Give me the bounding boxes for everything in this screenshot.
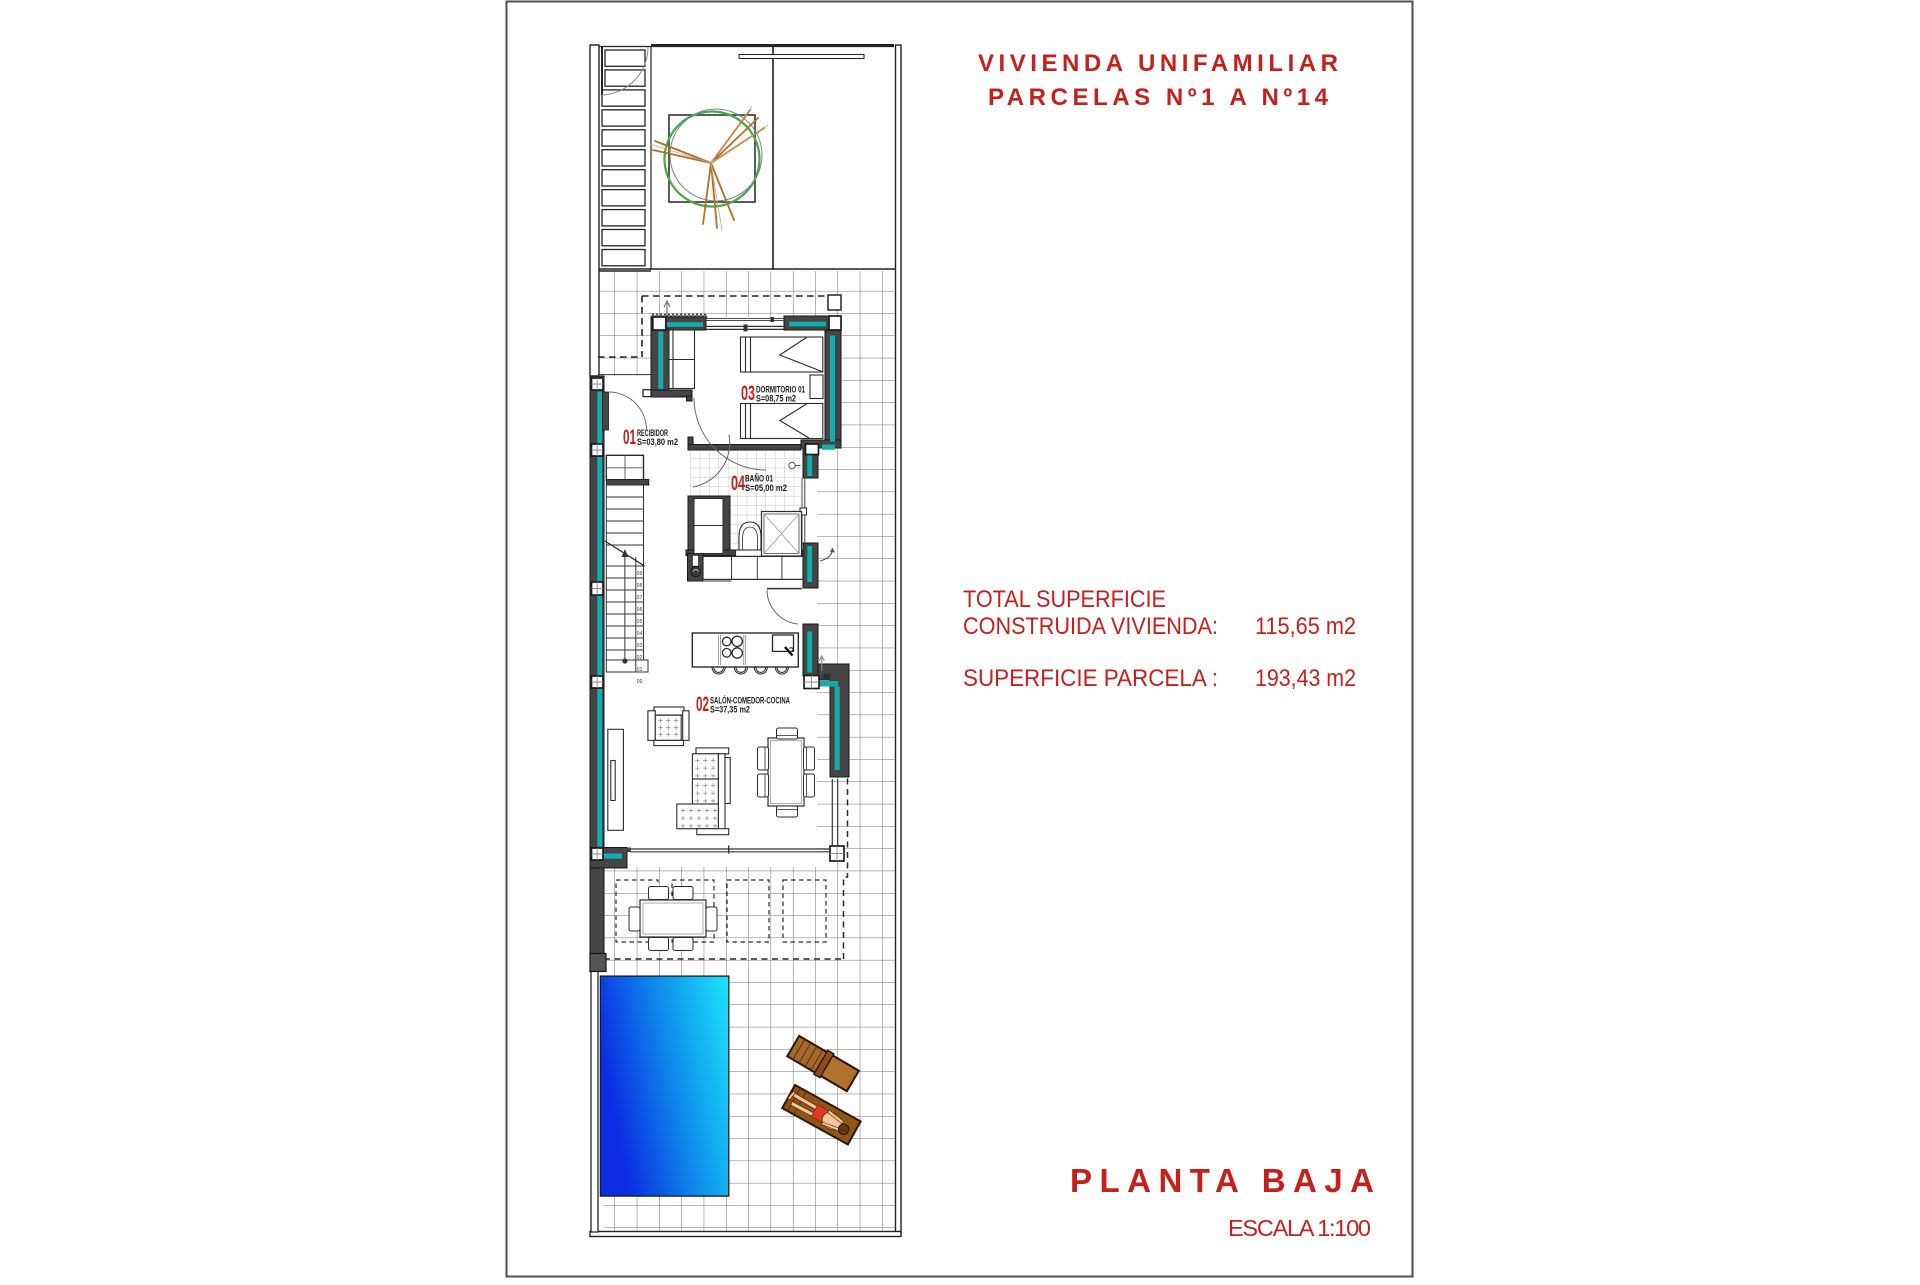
svg-text:S=05,00 m2: S=05,00 m2 xyxy=(745,483,787,494)
svg-text:01: 01 xyxy=(623,426,636,449)
svg-text:00: 00 xyxy=(637,679,643,685)
svg-text:05: 05 xyxy=(637,619,643,625)
svg-text:CONSTRUIDA VIVIENDA:: CONSTRUIDA VIVIENDA: xyxy=(963,613,1218,640)
svg-text:ESCALA 1:100: ESCALA 1:100 xyxy=(1228,1215,1371,1241)
svg-text:02: 02 xyxy=(696,693,709,716)
svg-text:S=03,80 m2: S=03,80 m2 xyxy=(637,437,678,448)
svg-text:02: 02 xyxy=(637,655,643,661)
svg-text:PLANTA BAJA: PLANTA BAJA xyxy=(1070,1162,1374,1199)
svg-text:09: 09 xyxy=(637,571,643,577)
svg-text:01: 01 xyxy=(637,667,643,673)
svg-text:04: 04 xyxy=(637,631,643,637)
svg-text:S=37,35 m2: S=37,35 m2 xyxy=(710,705,750,716)
svg-text:04: 04 xyxy=(731,472,745,495)
svg-text:SUPERFICIE PARCELA :: SUPERFICIE PARCELA : xyxy=(963,665,1218,692)
svg-text:07: 07 xyxy=(637,595,643,601)
svg-text:06: 06 xyxy=(637,607,643,613)
svg-text:PARCELAS Nº1 A Nº14: PARCELAS Nº1 A Nº14 xyxy=(988,84,1329,111)
svg-text:S=08,75 m2: S=08,75 m2 xyxy=(756,394,796,405)
svg-text:08: 08 xyxy=(637,583,643,589)
svg-text:TOTAL SUPERFICIE: TOTAL SUPERFICIE xyxy=(963,586,1166,613)
svg-text:115,65 m2: 115,65 m2 xyxy=(1255,613,1356,640)
svg-text:03: 03 xyxy=(637,643,643,649)
svg-text:03: 03 xyxy=(741,382,755,405)
svg-text:193,43 m2: 193,43 m2 xyxy=(1255,665,1356,692)
